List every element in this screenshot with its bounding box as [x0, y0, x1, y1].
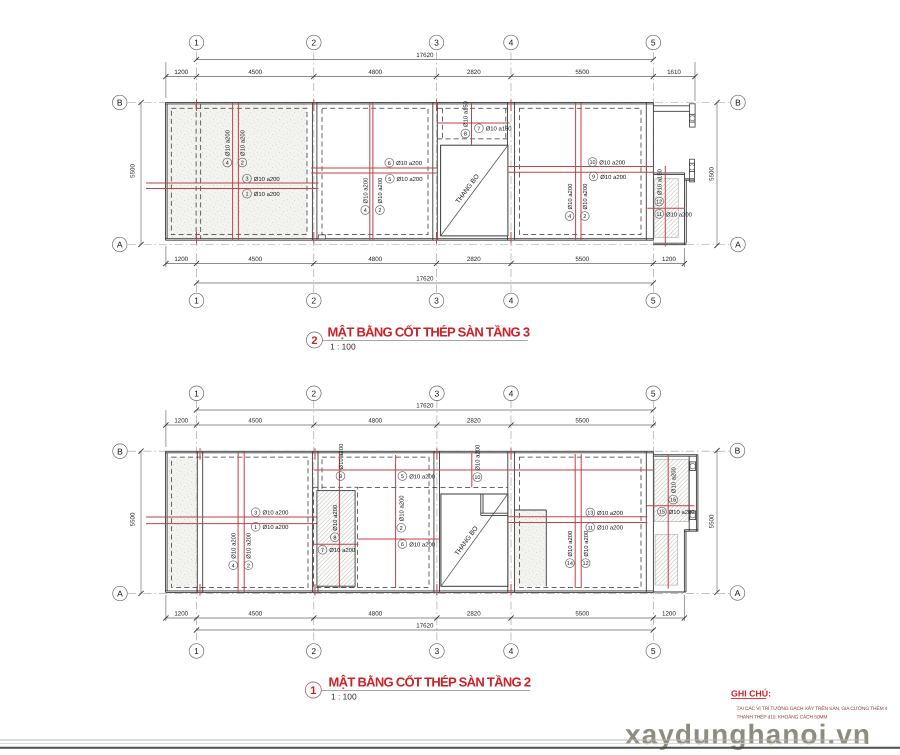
svg-text:1200: 1200: [174, 69, 188, 76]
svg-text:MẬT BẰNG CỐT THÉP SÀN TẦNG 2: MẬT BẰNG CỐT THÉP SÀN TẦNG 2: [329, 674, 531, 689]
svg-text:1200: 1200: [174, 418, 188, 425]
svg-text:Ø10 a150: Ø10 a150: [657, 168, 664, 195]
svg-text:Ø10 a200: Ø10 a200: [338, 443, 345, 470]
svg-text:2: 2: [400, 526, 403, 532]
svg-text:4: 4: [232, 563, 235, 569]
svg-text:Ø10 a200: Ø10 a200: [670, 467, 677, 494]
svg-text:3: 3: [435, 388, 440, 398]
svg-text:1 : 100: 1 : 100: [330, 342, 356, 352]
svg-text:5500: 5500: [575, 256, 589, 263]
svg-text:4800: 4800: [368, 69, 382, 76]
svg-text:1 : 100: 1 : 100: [331, 692, 357, 702]
svg-text:4800: 4800: [368, 418, 382, 425]
svg-text:Ø10 a200: Ø10 a200: [246, 532, 253, 559]
svg-text:3: 3: [245, 177, 248, 183]
svg-text:4500: 4500: [248, 256, 262, 263]
svg-text:Ø10 a200: Ø10 a200: [669, 509, 696, 516]
svg-text:4800: 4800: [368, 256, 382, 263]
svg-text:11: 11: [656, 212, 662, 218]
svg-text:15: 15: [659, 510, 665, 516]
svg-text:4500: 4500: [248, 611, 262, 618]
svg-text:1200: 1200: [662, 256, 676, 263]
svg-text:xaydunghanoi.vn: xaydunghanoi.vn: [625, 719, 871, 750]
svg-text:Ø10 a200: Ø10 a200: [567, 183, 574, 210]
svg-text:2: 2: [378, 208, 381, 214]
svg-text:B: B: [735, 446, 741, 456]
svg-text:Ø10 a200: Ø10 a200: [397, 176, 424, 183]
svg-text:Ø10 a200: Ø10 a200: [254, 176, 281, 183]
svg-text:5500: 5500: [575, 418, 589, 425]
svg-text:Ø10 a200: Ø10 a200: [475, 444, 482, 471]
svg-text:4: 4: [509, 296, 514, 306]
svg-text:2: 2: [583, 214, 586, 220]
svg-text:2820: 2820: [467, 256, 481, 263]
svg-text:A: A: [117, 240, 123, 250]
svg-text:7: 7: [321, 548, 324, 554]
svg-text:4800: 4800: [368, 611, 382, 618]
svg-text:1: 1: [194, 646, 199, 656]
svg-text:Ø10 a200: Ø10 a200: [396, 160, 423, 167]
svg-text:Ø10 a200: Ø10 a200: [597, 510, 624, 517]
svg-text:B: B: [117, 446, 123, 456]
svg-text:MẬT BẰNG CỐT THÉP SÀN TẦNG 3: MẬT BẰNG CỐT THÉP SÀN TẦNG 3: [328, 325, 530, 340]
svg-text:17620: 17620: [416, 52, 434, 59]
svg-text:14: 14: [567, 561, 573, 567]
svg-text:1200: 1200: [174, 611, 188, 618]
svg-text:2: 2: [247, 563, 250, 569]
svg-text:Ø10 a200: Ø10 a200: [263, 510, 290, 517]
svg-text:4500: 4500: [248, 69, 262, 76]
svg-text:Ø10 a200: Ø10 a200: [231, 532, 238, 559]
svg-text:17620: 17620: [416, 276, 434, 283]
svg-text:Ø10 a200: Ø10 a200: [399, 495, 406, 522]
svg-text:Ø10 a200: Ø10 a200: [409, 541, 436, 548]
svg-text:9: 9: [339, 474, 342, 480]
svg-text:5500: 5500: [575, 69, 589, 76]
svg-text:1: 1: [245, 192, 248, 198]
svg-text:TẠI CÁC VỊ TRÍ TƯỜNG GẠCH XÂY: TẠI CÁC VỊ TRÍ TƯỜNG GẠCH XÂY TRÊN SÀN, …: [737, 705, 888, 712]
svg-text:A: A: [117, 589, 123, 599]
svg-text:GHI CHÚ:: GHI CHÚ:: [731, 689, 771, 699]
svg-text:1200: 1200: [662, 611, 676, 618]
svg-text:Ø10 a200: Ø10 a200: [332, 504, 339, 531]
svg-text:5500: 5500: [130, 164, 137, 178]
svg-text:Ø10 a200: Ø10 a200: [583, 530, 590, 557]
svg-text:A: A: [735, 588, 741, 598]
svg-text:8: 8: [333, 535, 336, 541]
svg-text:3: 3: [434, 38, 439, 48]
svg-text:Ø10 a200: Ø10 a200: [254, 191, 281, 198]
svg-text:1200: 1200: [174, 256, 188, 263]
svg-text:2: 2: [241, 161, 244, 167]
svg-text:5500: 5500: [130, 512, 137, 526]
svg-text:3: 3: [435, 646, 440, 656]
svg-text:5: 5: [651, 388, 656, 398]
svg-text:4: 4: [509, 38, 514, 48]
svg-text:1: 1: [194, 38, 199, 48]
svg-text:Ø10 a200: Ø10 a200: [567, 530, 574, 557]
svg-text:Ø10 a200: Ø10 a200: [263, 524, 290, 531]
svg-text:Ø10 a200: Ø10 a200: [409, 473, 436, 480]
svg-text:11: 11: [587, 525, 593, 531]
svg-text:Ø10 a200: Ø10 a200: [582, 183, 589, 210]
svg-text:2: 2: [311, 335, 317, 347]
svg-text:5: 5: [651, 38, 656, 48]
svg-text:10: 10: [589, 160, 595, 166]
svg-text:1: 1: [194, 296, 199, 306]
svg-text:B: B: [735, 98, 741, 108]
svg-text:Ø10 a200: Ø10 a200: [329, 547, 356, 554]
svg-text:2: 2: [311, 388, 316, 398]
svg-text:1: 1: [310, 685, 316, 697]
svg-text:17620: 17620: [416, 623, 434, 630]
svg-text:2820: 2820: [467, 418, 481, 425]
svg-text:4: 4: [509, 646, 514, 656]
svg-text:4: 4: [509, 388, 514, 398]
svg-text:2: 2: [311, 296, 316, 306]
svg-text:5500: 5500: [709, 514, 716, 528]
svg-text:12: 12: [583, 561, 589, 567]
svg-text:4: 4: [568, 214, 571, 220]
svg-text:A: A: [735, 240, 741, 250]
svg-text:2820: 2820: [467, 69, 481, 76]
svg-text:4: 4: [364, 208, 367, 214]
svg-text:5: 5: [401, 474, 404, 480]
svg-text:Ø10 a200: Ø10 a200: [597, 525, 624, 532]
svg-text:2820: 2820: [467, 611, 481, 618]
svg-text:Ø10 a200: Ø10 a200: [225, 129, 232, 156]
svg-text:13: 13: [587, 511, 593, 517]
svg-text:Ø10 a150: Ø10 a150: [463, 100, 470, 127]
svg-text:2: 2: [311, 38, 316, 48]
svg-text:9: 9: [592, 175, 595, 181]
svg-text:7: 7: [477, 126, 480, 132]
svg-text:5: 5: [388, 177, 391, 183]
svg-text:2: 2: [311, 646, 316, 656]
svg-text:5500: 5500: [575, 611, 589, 618]
svg-text:12: 12: [656, 200, 662, 206]
svg-text:3: 3: [434, 296, 439, 306]
svg-text:Ø10 a200: Ø10 a200: [377, 177, 384, 204]
svg-text:5500: 5500: [709, 167, 716, 181]
svg-text:Ø10 a200: Ø10 a200: [240, 129, 247, 156]
svg-text:3: 3: [254, 510, 257, 516]
svg-text:5: 5: [651, 296, 656, 306]
svg-text:1: 1: [254, 525, 257, 531]
svg-text:6: 6: [388, 161, 391, 167]
svg-text:Ø10 a200: Ø10 a200: [600, 174, 627, 181]
svg-text:Ø10 a200: Ø10 a200: [666, 211, 693, 218]
svg-text:Ø10 a150: Ø10 a150: [486, 126, 513, 133]
svg-text:16: 16: [670, 498, 676, 504]
svg-text:10: 10: [474, 475, 480, 481]
svg-text:Ø10 a200: Ø10 a200: [599, 159, 626, 166]
svg-text:5: 5: [651, 646, 656, 656]
svg-text:1: 1: [194, 388, 199, 398]
svg-text:B: B: [117, 98, 123, 108]
svg-text:8: 8: [464, 132, 467, 138]
svg-text:Ø10 a200: Ø10 a200: [363, 177, 370, 204]
svg-text:6: 6: [401, 542, 404, 548]
svg-text:17620: 17620: [416, 403, 434, 410]
svg-text:4: 4: [226, 161, 229, 167]
svg-text:1610: 1610: [667, 69, 681, 76]
svg-text:4500: 4500: [248, 418, 262, 425]
